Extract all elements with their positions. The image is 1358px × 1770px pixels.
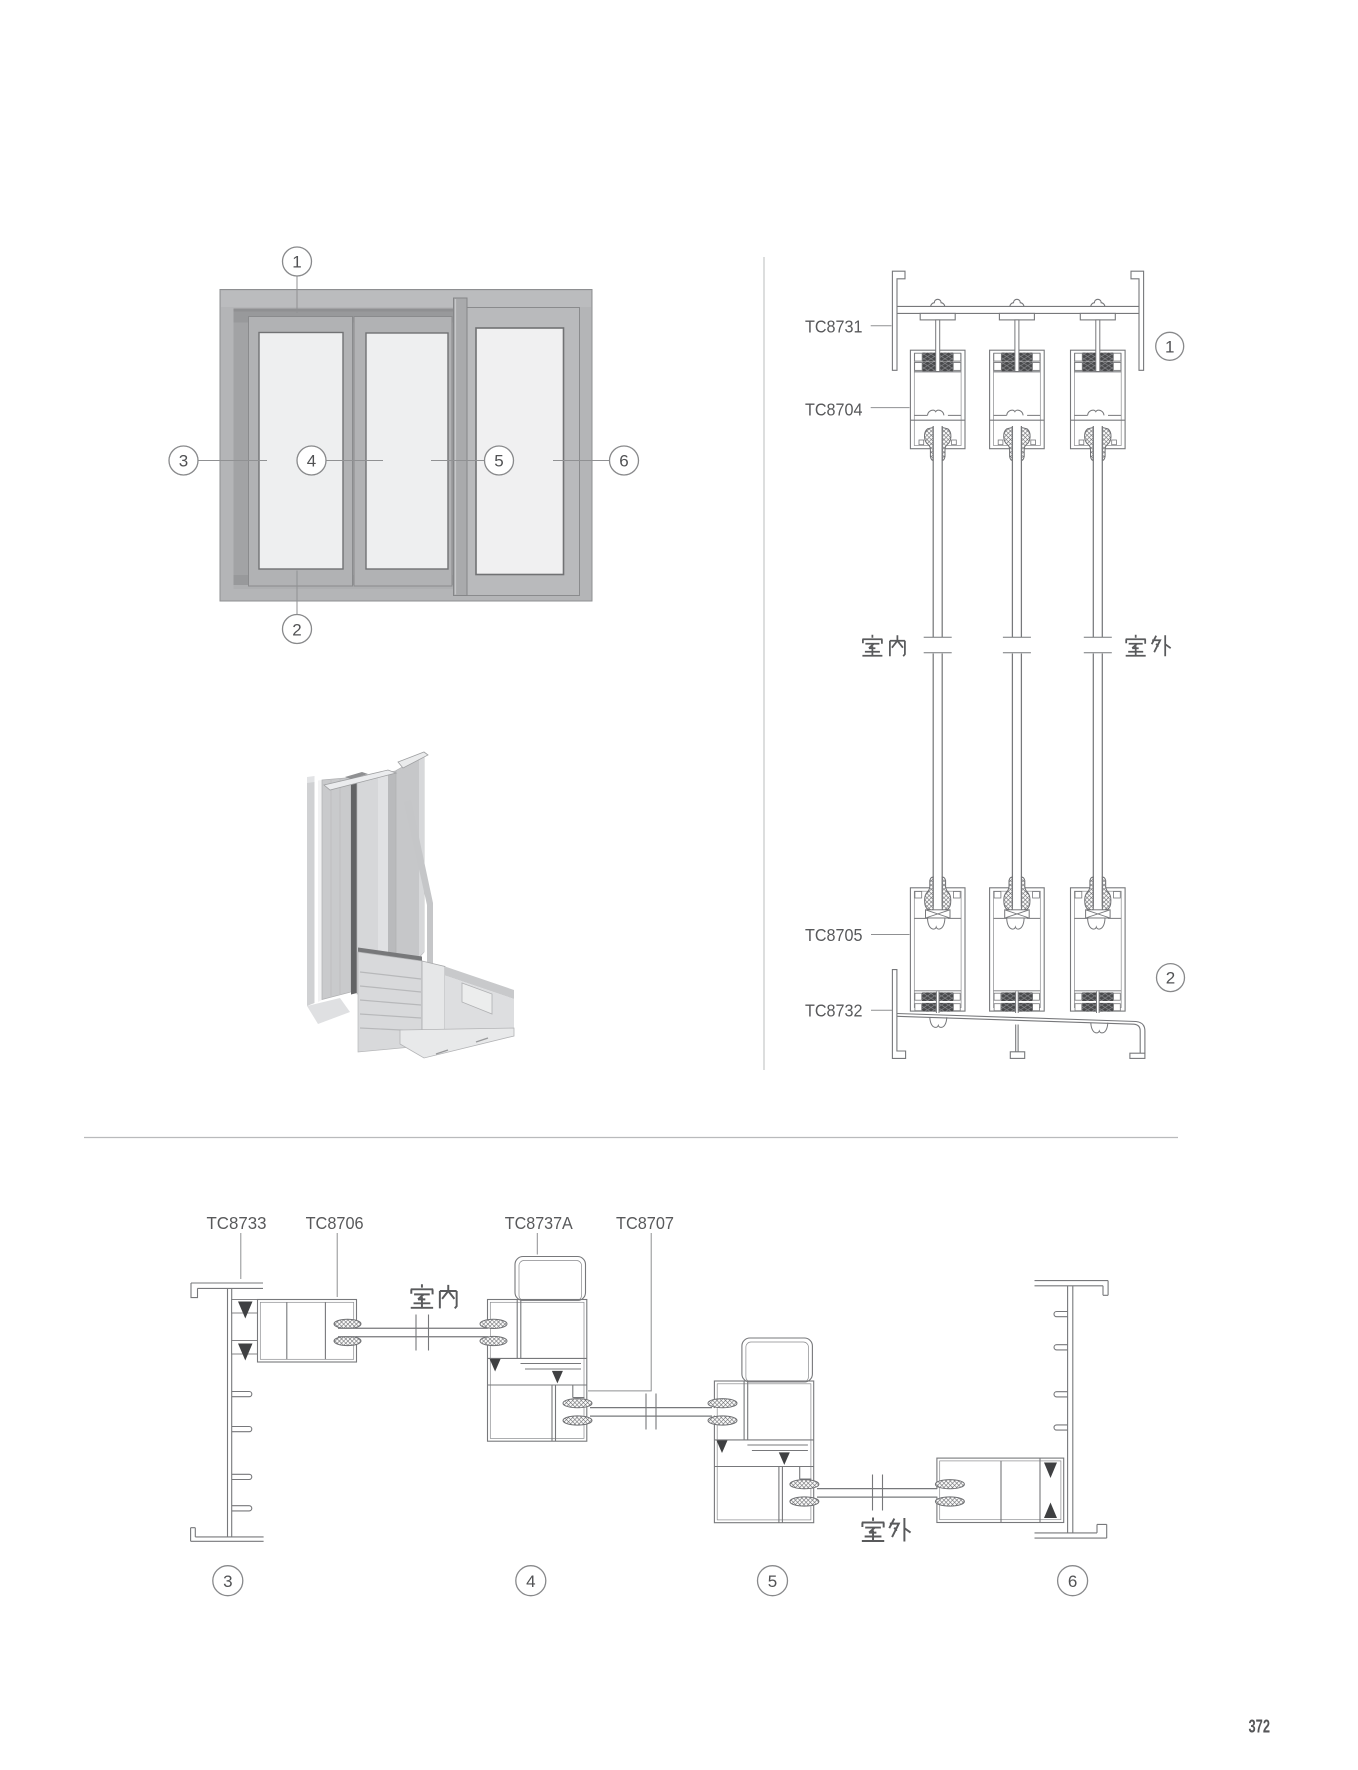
svg-text:6: 6 bbox=[619, 452, 628, 471]
svg-text:TC8707: TC8707 bbox=[616, 1213, 674, 1233]
svg-text:5: 5 bbox=[494, 452, 503, 471]
svg-text:2: 2 bbox=[292, 621, 301, 640]
svg-text:1: 1 bbox=[292, 253, 301, 272]
svg-text:4: 4 bbox=[526, 1572, 535, 1591]
svg-text:3: 3 bbox=[179, 452, 188, 471]
svg-text:4: 4 bbox=[307, 452, 316, 471]
svg-text:TC8731: TC8731 bbox=[805, 317, 863, 337]
svg-text:372: 372 bbox=[1249, 1716, 1271, 1737]
svg-text:6: 6 bbox=[1068, 1572, 1077, 1591]
svg-text:5: 5 bbox=[768, 1572, 777, 1591]
svg-text:TC8704: TC8704 bbox=[805, 400, 863, 420]
svg-text:TC8705: TC8705 bbox=[805, 925, 863, 945]
svg-text:TC8706: TC8706 bbox=[306, 1213, 364, 1233]
svg-text:TC8733: TC8733 bbox=[207, 1213, 267, 1233]
svg-text:TC8737A: TC8737A bbox=[505, 1213, 573, 1233]
svg-text:1: 1 bbox=[1165, 337, 1174, 356]
svg-text:2: 2 bbox=[1166, 969, 1175, 988]
svg-text:TC8732: TC8732 bbox=[805, 1001, 863, 1021]
svg-text:3: 3 bbox=[223, 1572, 232, 1591]
